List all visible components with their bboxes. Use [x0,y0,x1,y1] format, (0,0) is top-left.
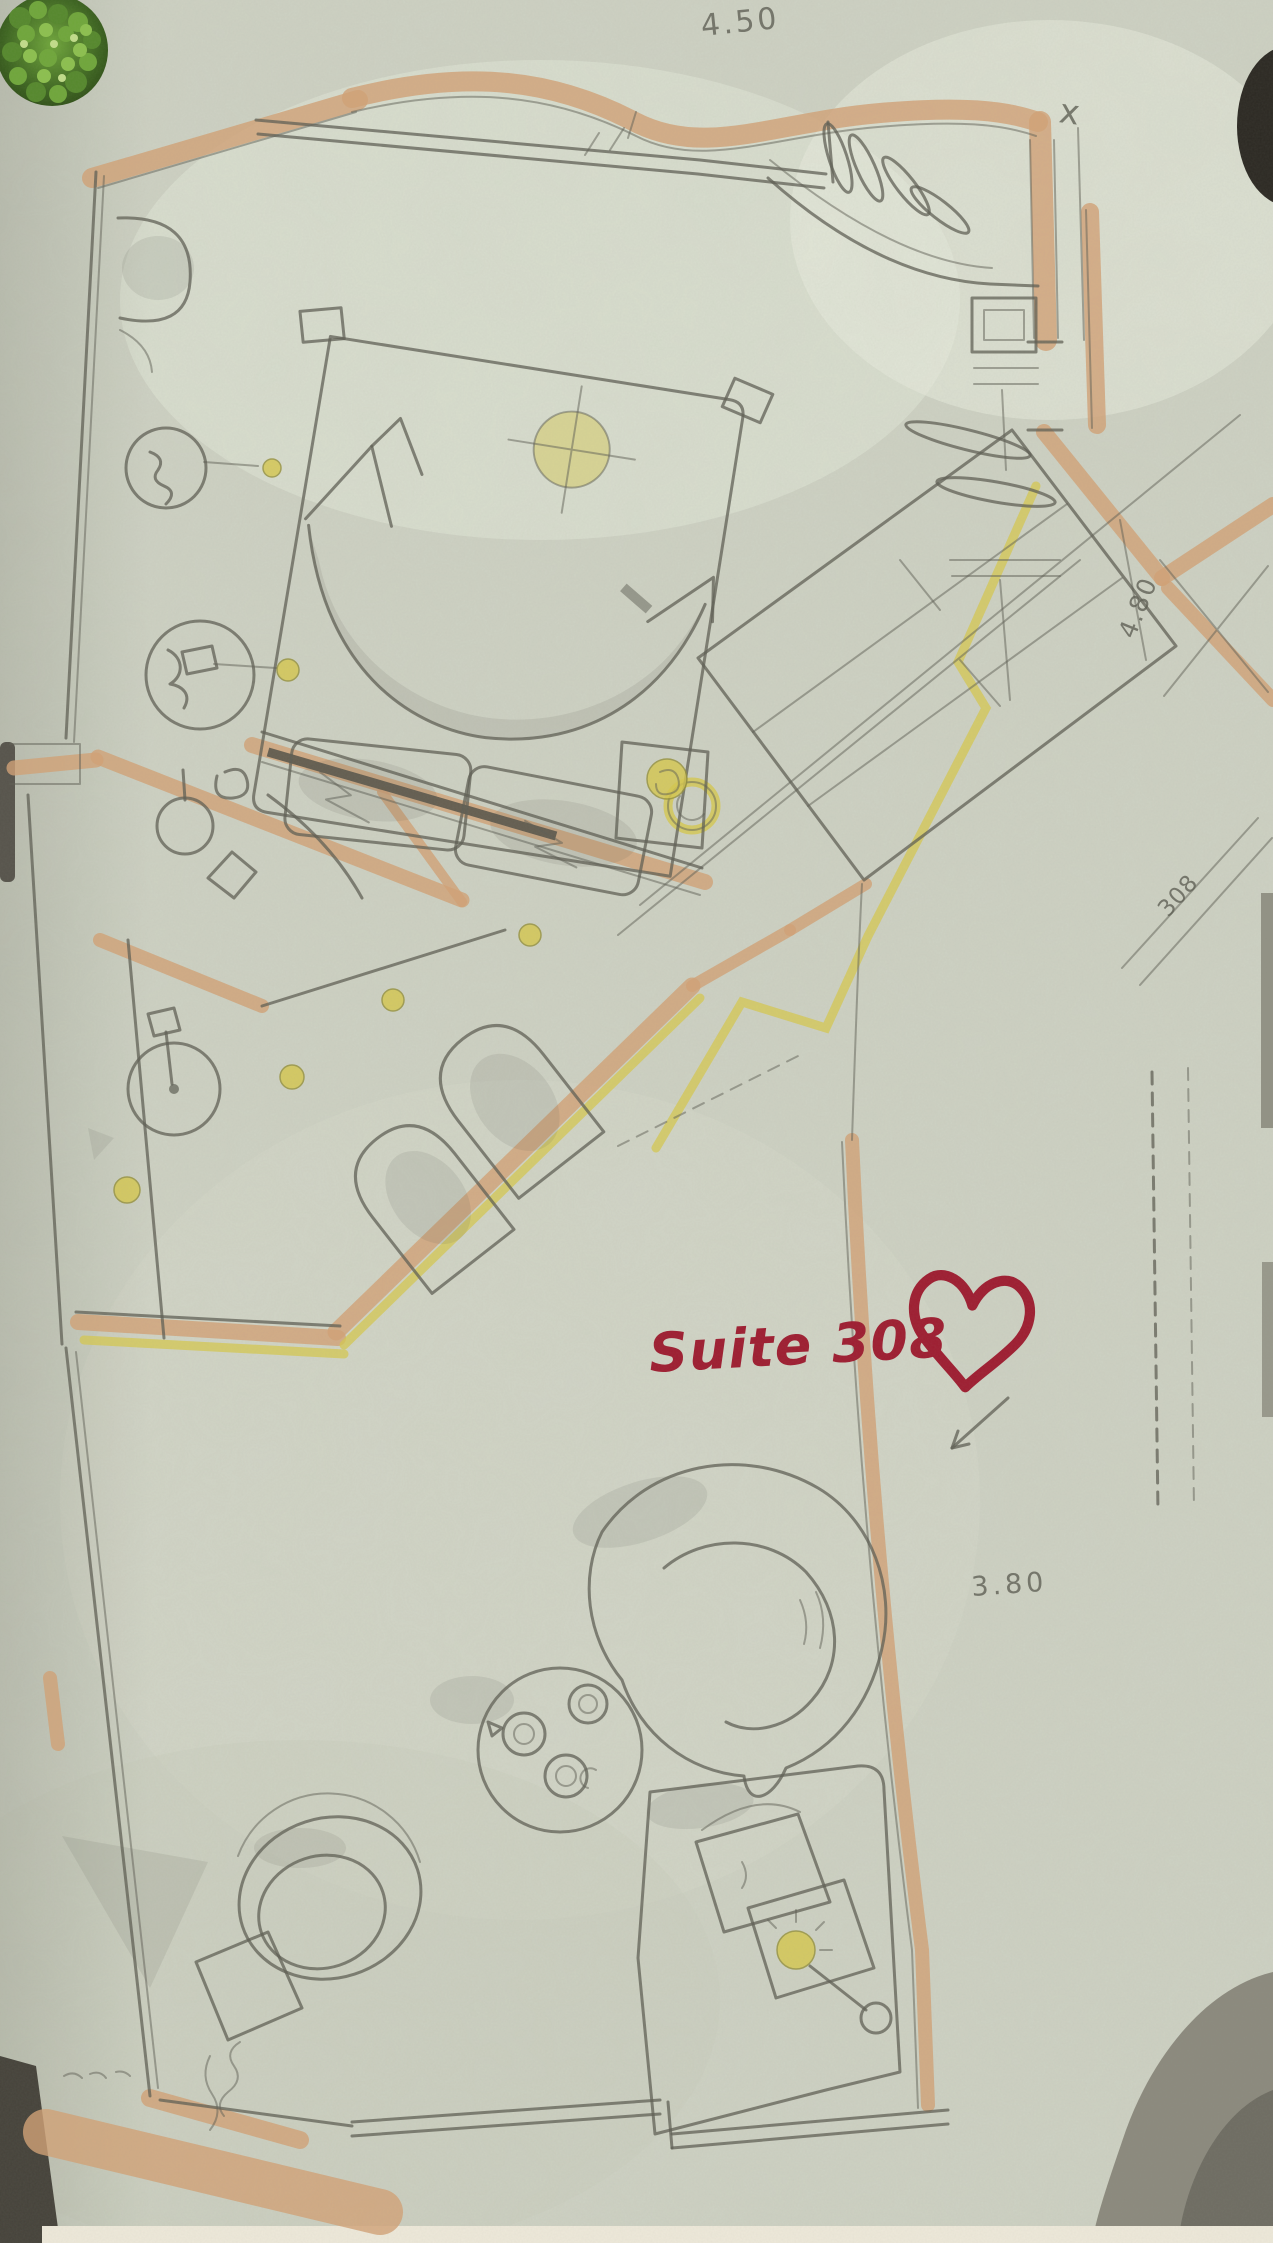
scanned-floor-plan: 4.50 4.80 308 3.80 x Suite 308 [0,0,1273,2243]
paper-grain-overlay [0,0,1273,2243]
